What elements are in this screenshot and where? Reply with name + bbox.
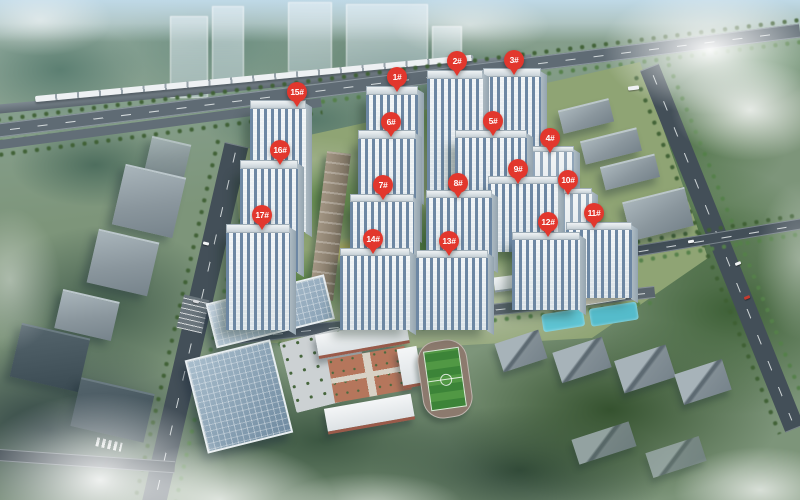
marker-label: 14# (366, 235, 379, 244)
marker-14[interactable]: 14# (363, 229, 383, 249)
marker-label: 17# (255, 211, 268, 220)
marker-2[interactable]: 2# (447, 51, 467, 71)
marker-label: 3# (510, 56, 519, 65)
marker-label: 6# (387, 118, 396, 127)
marker-6[interactable]: 6# (381, 112, 401, 132)
markers-layer: 1# 2# 3# 4# 5# 6# 7# 8# 9# 10# 11# 12# 1… (0, 0, 800, 500)
marker-12[interactable]: 12# (538, 212, 558, 232)
marker-1[interactable]: 1# (387, 67, 407, 87)
marker-8[interactable]: 8# (448, 173, 468, 193)
marker-label: 8# (454, 179, 463, 188)
marker-label: 7# (379, 181, 388, 190)
aerial-rendering: 1# 2# 3# 4# 5# 6# 7# 8# 9# 10# 11# 12# 1… (0, 0, 800, 500)
marker-9[interactable]: 9# (508, 159, 528, 179)
marker-17[interactable]: 17# (252, 205, 272, 225)
marker-label: 10# (561, 176, 574, 185)
marker-label: 4# (546, 134, 555, 143)
marker-15[interactable]: 15# (287, 82, 307, 102)
marker-label: 1# (393, 73, 402, 82)
marker-label: 2# (453, 57, 462, 66)
marker-10[interactable]: 10# (558, 170, 578, 190)
marker-label: 13# (442, 237, 455, 246)
marker-16[interactable]: 16# (270, 140, 290, 160)
marker-5[interactable]: 5# (483, 111, 503, 131)
marker-label: 12# (541, 218, 554, 227)
marker-label: 9# (514, 165, 523, 174)
marker-11[interactable]: 11# (584, 203, 604, 223)
marker-4[interactable]: 4# (540, 128, 560, 148)
marker-3[interactable]: 3# (504, 50, 524, 70)
marker-7[interactable]: 7# (373, 175, 393, 195)
marker-label: 15# (290, 88, 303, 97)
marker-label: 16# (273, 146, 286, 155)
marker-label: 11# (588, 209, 601, 218)
marker-13[interactable]: 13# (439, 231, 459, 251)
marker-label: 5# (489, 117, 498, 126)
